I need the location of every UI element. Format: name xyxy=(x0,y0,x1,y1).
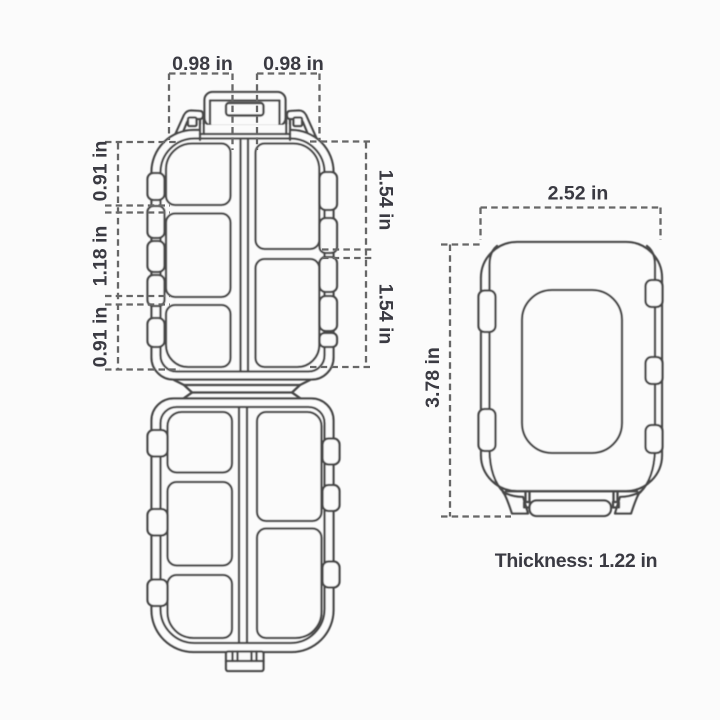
svg-text:3.78 in: 3.78 in xyxy=(422,347,444,408)
svg-text:2.52 in: 2.52 in xyxy=(548,183,609,205)
svg-text:0.98 in: 0.98 in xyxy=(172,53,233,75)
svg-text:Thickness: 1.22 in: Thickness: 1.22 in xyxy=(495,550,658,572)
svg-text:1.54 in: 1.54 in xyxy=(375,284,397,345)
svg-text:0.91 in: 0.91 in xyxy=(90,307,112,368)
svg-text:1.18 in: 1.18 in xyxy=(90,226,112,287)
svg-text:0.91 in: 0.91 in xyxy=(90,141,112,202)
svg-text:1.54 in: 1.54 in xyxy=(375,170,397,231)
svg-text:0.98 in: 0.98 in xyxy=(263,53,324,75)
